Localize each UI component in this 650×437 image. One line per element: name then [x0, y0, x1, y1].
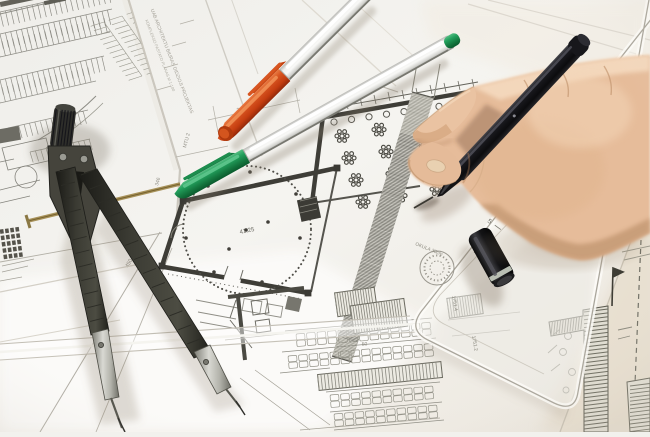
svg-text:50: 50 — [361, 341, 368, 348]
